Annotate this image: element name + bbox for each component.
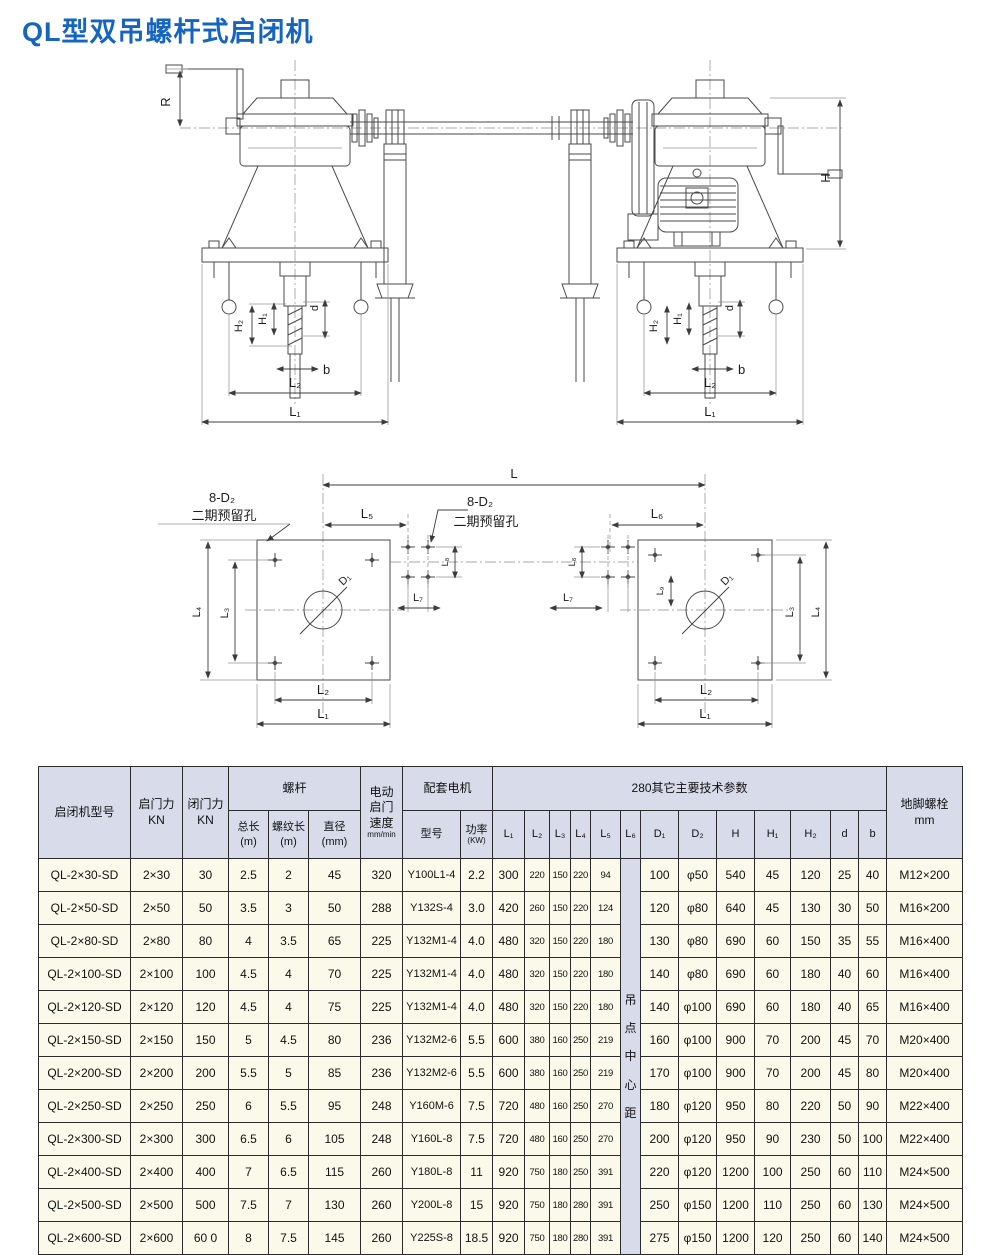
table-cell: 3	[269, 892, 309, 925]
header-thread-length: 螺纹长 (m)	[269, 811, 309, 859]
table-cell: 5	[229, 1024, 269, 1057]
table-cell: 2×80	[131, 925, 183, 958]
dim-label-l3-right: L₃	[784, 607, 796, 618]
table-cell: 4	[269, 958, 309, 991]
table-cell: 600	[493, 1057, 525, 1090]
table-cell: 750	[525, 1189, 550, 1222]
table-cell: 180	[550, 1156, 571, 1189]
table-cell: 288	[361, 892, 403, 925]
table-cell: QL-2×80-SD	[39, 925, 131, 958]
table-cell: 150	[550, 892, 571, 925]
table-cell: 400	[183, 1156, 229, 1189]
table-cell: 80	[859, 1057, 887, 1090]
table-cell: 7.5	[461, 1090, 493, 1123]
table-cell: 2.2	[461, 859, 493, 892]
table-cell: 100	[183, 958, 229, 991]
table-cell: φ120	[679, 1156, 717, 1189]
table-cell: 248	[361, 1090, 403, 1123]
table-cell: 690	[717, 925, 755, 958]
table-cell: 480	[525, 1090, 550, 1123]
header-dim-l4: L₄	[571, 811, 591, 859]
dim-label-l8-right: L₈	[567, 557, 577, 566]
table-cell: Y132M2-6	[403, 1057, 461, 1090]
table-cell: 219	[591, 1057, 621, 1090]
dim-label-l1-leftplate: L₁	[317, 706, 329, 721]
table-cell: 180	[591, 991, 621, 1024]
table-cell: 4	[229, 925, 269, 958]
table-cell: 250	[791, 1156, 831, 1189]
table-cell: φ100	[679, 1057, 717, 1090]
dim-label-d1-right: D₁	[719, 571, 736, 588]
header-tech-params-group: 280其它主要技术参数	[493, 767, 887, 811]
table-cell: 7.5	[461, 1123, 493, 1156]
table-cell: 3.5	[269, 925, 309, 958]
table-cell: 150	[550, 991, 571, 1024]
table-cell: 65	[859, 991, 887, 1024]
table-cell: 60	[755, 991, 791, 1024]
table-row: QL-2×500-SD2×5005007.57130260Y200L-81592…	[39, 1189, 963, 1222]
table-cell: 6	[269, 1123, 309, 1156]
table-cell: 100	[755, 1156, 791, 1189]
dim-label-l2-leftplate: L₂	[317, 682, 329, 697]
table-cell: 200	[183, 1057, 229, 1090]
table-cell: 50	[859, 892, 887, 925]
dim-label-l: L	[510, 466, 517, 481]
table-cell: 50	[831, 1090, 859, 1123]
table-cell: 540	[717, 859, 755, 892]
table-cell: 120	[183, 991, 229, 1024]
table-cell: 2×30	[131, 859, 183, 892]
table-cell: M12×200	[887, 859, 963, 892]
table-cell: 5	[269, 1057, 309, 1090]
table-cell: 2×300	[131, 1123, 183, 1156]
dim-label-l8-left: L₈	[440, 557, 450, 566]
table-cell: 60	[831, 1156, 859, 1189]
header-dim-h: H	[717, 811, 755, 859]
table-cell: 105	[309, 1123, 361, 1156]
dim-label-h: H	[818, 173, 833, 182]
table-cell: QL-2×100-SD	[39, 958, 131, 991]
table-cell: 180	[591, 958, 621, 991]
header-dim-d1: D₁	[641, 811, 679, 859]
table-cell: 225	[361, 991, 403, 1024]
table-cell: 320	[525, 991, 550, 1024]
table-cell: 280	[571, 1189, 591, 1222]
table-cell: 480	[493, 925, 525, 958]
dim-label-d1-left: D₁	[337, 571, 354, 588]
table-cell: 225	[361, 925, 403, 958]
table-cell: 250	[571, 1123, 591, 1156]
table-cell: 160	[641, 1024, 679, 1057]
header-motor-model: 型号	[403, 811, 461, 859]
table-cell: 690	[717, 958, 755, 991]
table-cell: 320	[525, 958, 550, 991]
table-cell: 2×100	[131, 958, 183, 991]
table-cell: 40	[859, 859, 887, 892]
dim-label-l2: L₂	[289, 375, 301, 390]
table-cell: 236	[361, 1057, 403, 1090]
table-cell: 180	[791, 991, 831, 1024]
table-cell: 180	[550, 1189, 571, 1222]
table-cell: Y132M2-6	[403, 1024, 461, 1057]
table-cell: Y160L-8	[403, 1123, 461, 1156]
table-cell: 40	[831, 991, 859, 1024]
header-dim-l2: L₂	[525, 811, 550, 859]
dim-label-d-right: d	[724, 305, 736, 311]
table-cell: 6.5	[269, 1156, 309, 1189]
bolt-hole	[365, 553, 379, 567]
table-cell: 140	[641, 958, 679, 991]
header-dim-h1: H₁	[755, 811, 791, 859]
header-motor-group: 配套电机	[403, 767, 493, 811]
dim-label-l1-right: L₁	[704, 404, 716, 419]
table-cell: 130	[859, 1189, 887, 1222]
dim-label-r: R	[158, 97, 173, 106]
table-cell: 30	[183, 859, 229, 892]
header-dim-l6: L₆	[621, 811, 641, 859]
table-cell: 75	[309, 991, 361, 1024]
table-cell: φ80	[679, 892, 717, 925]
table-cell: 70	[755, 1057, 791, 1090]
table-row: QL-2×300-SD2×3003006.56105248Y160L-87.57…	[39, 1123, 963, 1156]
dim-label-l4-left: L₄	[191, 606, 203, 617]
table-cell: 130	[791, 892, 831, 925]
table-cell: 5.5	[269, 1090, 309, 1123]
table-cell: M20×400	[887, 1057, 963, 1090]
table-cell: 2×400	[131, 1156, 183, 1189]
table-cell: 70	[755, 1024, 791, 1057]
dim-label-h1: H₁	[257, 313, 269, 325]
table-cell: 25	[831, 859, 859, 892]
table-cell: 150	[791, 925, 831, 958]
header-speed-unit: mm/min	[362, 831, 401, 840]
header-screw-group: 螺杆	[229, 767, 361, 811]
table-cell: 3.5	[229, 892, 269, 925]
header-model: 启闭机型号	[39, 767, 131, 859]
table-cell: 320	[525, 925, 550, 958]
header-dim-b: b	[859, 811, 887, 859]
table-cell: 380	[525, 1057, 550, 1090]
header-dim-h2: H₂	[791, 811, 831, 859]
table-cell: φ80	[679, 925, 717, 958]
reserved-holes-right-cluster	[574, 535, 635, 590]
table-row: QL-2×250-SD2×25025065.595248Y160M-67.572…	[39, 1090, 963, 1123]
table-row: QL-2×50-SD2×50503.5350288Y132S-43.042026…	[39, 892, 963, 925]
dim-label-l2-rightplate: L₂	[700, 682, 712, 697]
table-row: QL-2×400-SD2×40040076.5115260Y180L-81192…	[39, 1156, 963, 1189]
dim-label-h1-right: H₁	[672, 313, 684, 325]
table-cell: 4.5	[229, 958, 269, 991]
table-cell: 5.5	[461, 1024, 493, 1057]
table-cell: M16×400	[887, 958, 963, 991]
table-cell: 950	[717, 1090, 755, 1123]
table-cell: 6.5	[229, 1123, 269, 1156]
table-cell: 55	[859, 925, 887, 958]
table-row: QL-2×100-SD2×1001004.5470225Y132M1-44.04…	[39, 958, 963, 991]
table-cell: 45	[831, 1024, 859, 1057]
right-support-stand	[560, 110, 600, 382]
table-cell: 2.5	[229, 859, 269, 892]
dim-label-l9: L₉	[655, 586, 665, 595]
table-cell: 30	[831, 892, 859, 925]
table-cell: Y160M-6	[403, 1090, 461, 1123]
table-cell: QL-2×150-SD	[39, 1024, 131, 1057]
table-cell: 60	[859, 958, 887, 991]
table-cell: 250	[641, 1189, 679, 1222]
dim-label-l3-left: L₃	[219, 608, 231, 619]
right-crank-handle	[765, 118, 842, 178]
table-cell: M24×500	[887, 1189, 963, 1222]
table-cell: 7.5	[229, 1189, 269, 1222]
holes-note-left: 二期预留孔	[191, 508, 256, 523]
dim-label-b-right: b	[738, 362, 745, 377]
table-cell: M16×400	[887, 925, 963, 958]
table-cell: QL-2×120-SD	[39, 991, 131, 1024]
table-cell: 5.5	[461, 1057, 493, 1090]
table-cell: 260	[361, 1156, 403, 1189]
table-cell: 2×120	[131, 991, 183, 1024]
table-cell: 600	[493, 1024, 525, 1057]
table-cell: 85	[309, 1057, 361, 1090]
table-cell: 180	[641, 1090, 679, 1123]
table-cell: 1200	[717, 1156, 755, 1189]
plan-view-svg: L D₁ 8-D₂ 二期预留孔 L₅ L₆ 8-D₂ 二期预留孔 L₈	[150, 460, 870, 752]
header-power-title: 功率	[466, 824, 488, 836]
table-cell: Y200L-8	[403, 1189, 461, 1222]
table-cell: 160	[550, 1024, 571, 1057]
table-cell: 80	[309, 1024, 361, 1057]
table-cell: 180	[791, 958, 831, 991]
dim-label-l1: L₁	[289, 404, 301, 419]
table-cell: 690	[717, 991, 755, 1024]
dim-label-l2-right: L₂	[704, 375, 716, 390]
holes-label-mid: 8-D₂	[467, 494, 493, 509]
table-cell: 60	[755, 925, 791, 958]
table-cell: Y132M1-4	[403, 958, 461, 991]
dim-label-l7-left: L₇	[413, 592, 423, 604]
table-cell: 115	[309, 1156, 361, 1189]
table-cell: 920	[493, 1189, 525, 1222]
table-cell: 380	[525, 1024, 550, 1057]
dim-label-l4-right: L₄	[810, 606, 822, 617]
table-cell: 90	[755, 1123, 791, 1156]
table-cell: 11	[461, 1156, 493, 1189]
table-cell: 45	[755, 892, 791, 925]
header-diameter: 直径 (mm)	[309, 811, 361, 859]
table-cell: 50	[831, 1123, 859, 1156]
table-cell: 950	[717, 1123, 755, 1156]
table-cell: 220	[525, 859, 550, 892]
lifting-point-note-cell: 吊 点 中 心 距	[621, 859, 641, 1255]
table-cell: 230	[791, 1123, 831, 1156]
table-cell: 3.0	[461, 892, 493, 925]
spec-table: 启闭机型号 启门力 KN 闭门力 KN 螺杆 电动 启门 速度mm/min 配套…	[38, 766, 963, 1255]
header-close-force: 闭门力 KN	[183, 767, 229, 859]
table-cell: 124	[591, 892, 621, 925]
table-cell: Y100L1-4	[403, 859, 461, 892]
table-cell: 250	[571, 1057, 591, 1090]
table-cell: 170	[641, 1057, 679, 1090]
table-row: QL-2×30-SD2×30302.5245320Y100L1-42.23002…	[39, 859, 963, 892]
table-cell: 35	[831, 925, 859, 958]
table-cell: Y132M1-4	[403, 925, 461, 958]
table-cell: 236	[361, 1024, 403, 1057]
table-cell: 60	[755, 958, 791, 991]
table-cell: QL-2×30-SD	[39, 859, 131, 892]
table-cell: 320	[361, 859, 403, 892]
table-cell: 420	[493, 892, 525, 925]
table-cell: 391	[591, 1156, 621, 1189]
header-dim-d: d	[831, 811, 859, 859]
table-cell: φ150	[679, 1189, 717, 1222]
table-cell: 220	[571, 958, 591, 991]
table-cell: 4.0	[461, 925, 493, 958]
front-view-drawing: R H	[140, 52, 860, 460]
table-cell: 1200	[717, 1189, 755, 1222]
table-cell: 80	[755, 1090, 791, 1123]
table-row: QL-2×150-SD2×15015054.580236Y132M2-65.56…	[39, 1024, 963, 1057]
table-cell: 720	[493, 1090, 525, 1123]
table-cell: 2×500	[131, 1189, 183, 1222]
table-cell: 5.5	[229, 1057, 269, 1090]
table-cell: 150	[550, 958, 571, 991]
table-cell: 300	[493, 859, 525, 892]
table-cell: M16×400	[887, 991, 963, 1024]
table-cell: 4.0	[461, 958, 493, 991]
header-dim-l1: L₁	[493, 811, 525, 859]
header-total-length: 总长 (m)	[229, 811, 269, 859]
reserved-holes-left-cluster	[401, 535, 462, 590]
table-cell: 391	[591, 1189, 621, 1222]
table-cell: M24×500	[887, 1156, 963, 1189]
table-cell: 95	[309, 1090, 361, 1123]
dim-label-l5: L₅	[361, 506, 373, 521]
bolt-hole	[365, 656, 379, 670]
header-power-unit: (KW)	[462, 837, 491, 846]
table-cell: QL-2×250-SD	[39, 1090, 131, 1123]
front-view-svg: R H	[140, 52, 860, 460]
table-cell: 640	[717, 892, 755, 925]
table-cell: 200	[791, 1057, 831, 1090]
table-cell: 50	[183, 892, 229, 925]
table-cell: 300	[183, 1123, 229, 1156]
page-title: QL型双吊螺杆式启闭机	[22, 10, 314, 49]
table-cell: 4.5	[229, 991, 269, 1024]
table-cell: φ120	[679, 1090, 717, 1123]
table-cell: 260	[361, 1189, 403, 1222]
table-cell: 270	[591, 1123, 621, 1156]
table-cell: 94	[591, 859, 621, 892]
table-cell: 250	[183, 1090, 229, 1123]
table-cell: 2	[269, 859, 309, 892]
header-speed-title: 电动 启门 速度	[362, 785, 401, 832]
table-cell: 80	[183, 925, 229, 958]
table-cell: 160	[550, 1057, 571, 1090]
table-cell: 220	[641, 1156, 679, 1189]
table-cell: 150	[550, 859, 571, 892]
table-cell: 200	[641, 1123, 679, 1156]
table-cell: 200	[791, 1024, 831, 1057]
table-cell: 110	[859, 1156, 887, 1189]
table-cell: 160	[550, 1090, 571, 1123]
table-cell: 160	[550, 1123, 571, 1156]
table-cell: 260	[525, 892, 550, 925]
table-cell: 2×200	[131, 1057, 183, 1090]
table-cell: 220	[571, 892, 591, 925]
holes-note-mid: 二期预留孔	[453, 514, 518, 529]
table-cell: M22×400	[887, 1090, 963, 1123]
table-cell: 500	[183, 1189, 229, 1222]
table-cell: 70	[859, 1024, 887, 1057]
table-cell: M22×400	[887, 1123, 963, 1156]
header-open-force: 启门力 KN	[131, 767, 183, 859]
table-cell: 480	[525, 1123, 550, 1156]
bolt-hole	[648, 548, 662, 562]
table-cell: 7	[269, 1189, 309, 1222]
table-cell: 2×150	[131, 1024, 183, 1057]
bolt-hole	[648, 656, 662, 670]
table-cell: 180	[591, 925, 621, 958]
table-cell: φ80	[679, 958, 717, 991]
table-cell: 2×50	[131, 892, 183, 925]
header-dim-d2: D₂	[679, 811, 717, 859]
dim-label-l1-rightplate: L₁	[699, 706, 711, 721]
table-cell: 50	[309, 892, 361, 925]
table-cell: 130	[309, 1189, 361, 1222]
table-cell: 4	[269, 991, 309, 1024]
dim-label-l7-right: L₇	[563, 592, 573, 604]
dim-label-h2: H₂	[233, 320, 245, 332]
spec-table-body: QL-2×30-SD2×30302.5245320Y100L1-42.23002…	[39, 859, 963, 1255]
table-cell: φ120	[679, 1123, 717, 1156]
bolt-hole	[268, 553, 282, 567]
table-cell: φ50	[679, 859, 717, 892]
dim-label-d: d	[309, 305, 321, 311]
table-cell: 65	[309, 925, 361, 958]
header-anchor-bolt: 地脚螺栓 mm	[887, 767, 963, 859]
table-cell: 6	[229, 1090, 269, 1123]
dim-label-l6: L₆	[651, 506, 663, 521]
table-cell: 45	[309, 859, 361, 892]
table-cell: 480	[493, 958, 525, 991]
table-cell: 270	[591, 1090, 621, 1123]
table-cell: Y132S-4	[403, 892, 461, 925]
table-cell: Y132M1-4	[403, 991, 461, 1024]
holes-label-left: 8-D₂	[209, 490, 235, 505]
table-cell: 220	[571, 991, 591, 1024]
table-cell: M16×200	[887, 892, 963, 925]
table-cell: 900	[717, 1024, 755, 1057]
table-cell: 900	[717, 1057, 755, 1090]
table-cell: QL-2×400-SD	[39, 1156, 131, 1189]
table-row: QL-2×200-SD2×2002005.5585236Y132M2-65.56…	[39, 1057, 963, 1090]
table-cell: 750	[525, 1156, 550, 1189]
table-cell: 4.5	[269, 1024, 309, 1057]
table-cell: 120	[641, 892, 679, 925]
header-speed: 电动 启门 速度mm/min	[361, 767, 403, 859]
table-cell: 150	[550, 925, 571, 958]
table-row: QL-2×120-SD2×1201204.5475225Y132M1-44.04…	[39, 991, 963, 1024]
table-cell: 60	[831, 1189, 859, 1222]
table-cell: 250	[571, 1156, 591, 1189]
table-cell: 100	[641, 859, 679, 892]
table-cell: 45	[755, 859, 791, 892]
table-row: QL-2×80-SD2×808043.565225Y132M1-44.04803…	[39, 925, 963, 958]
bolt-hole	[268, 656, 282, 670]
table-cell: 219	[591, 1024, 621, 1057]
table-cell: φ100	[679, 991, 717, 1024]
table-cell: 90	[859, 1090, 887, 1123]
